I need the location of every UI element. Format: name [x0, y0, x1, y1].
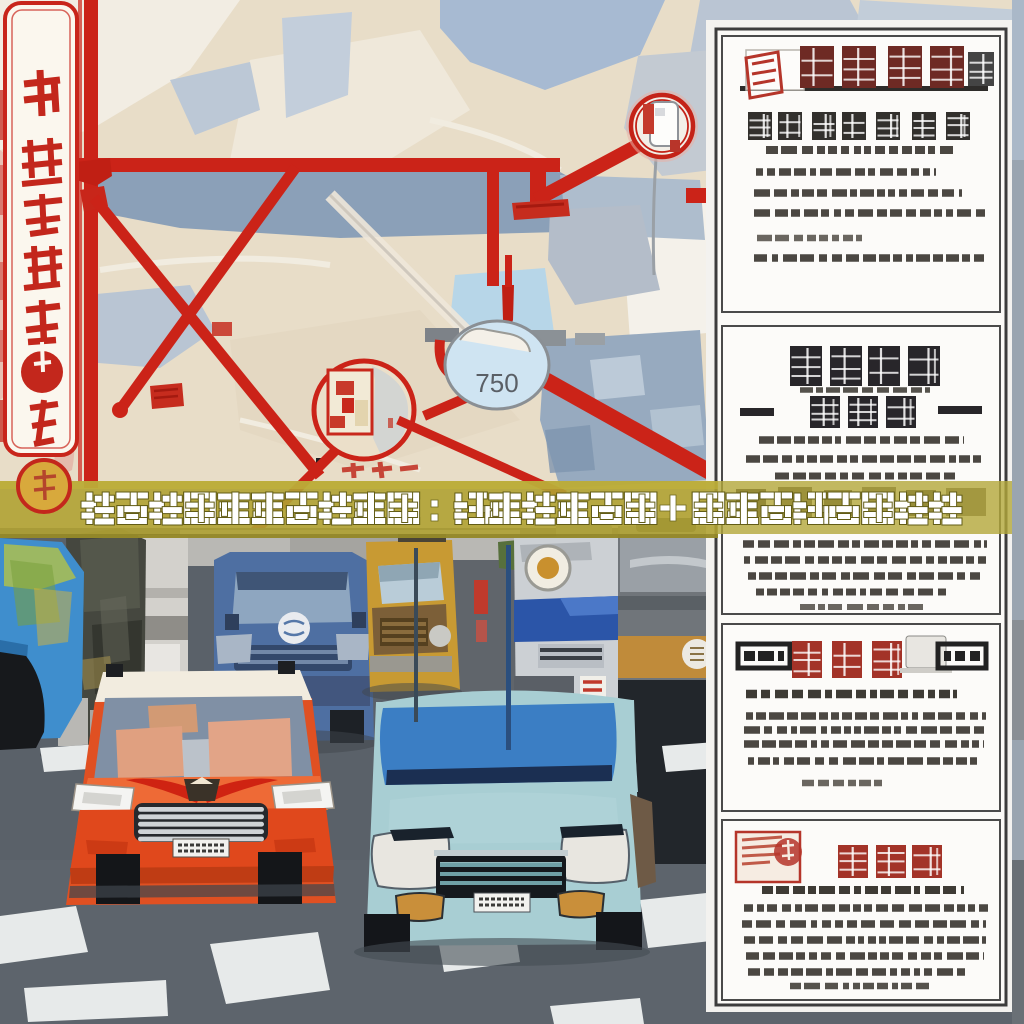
svg-text:750: 750 — [475, 368, 518, 398]
